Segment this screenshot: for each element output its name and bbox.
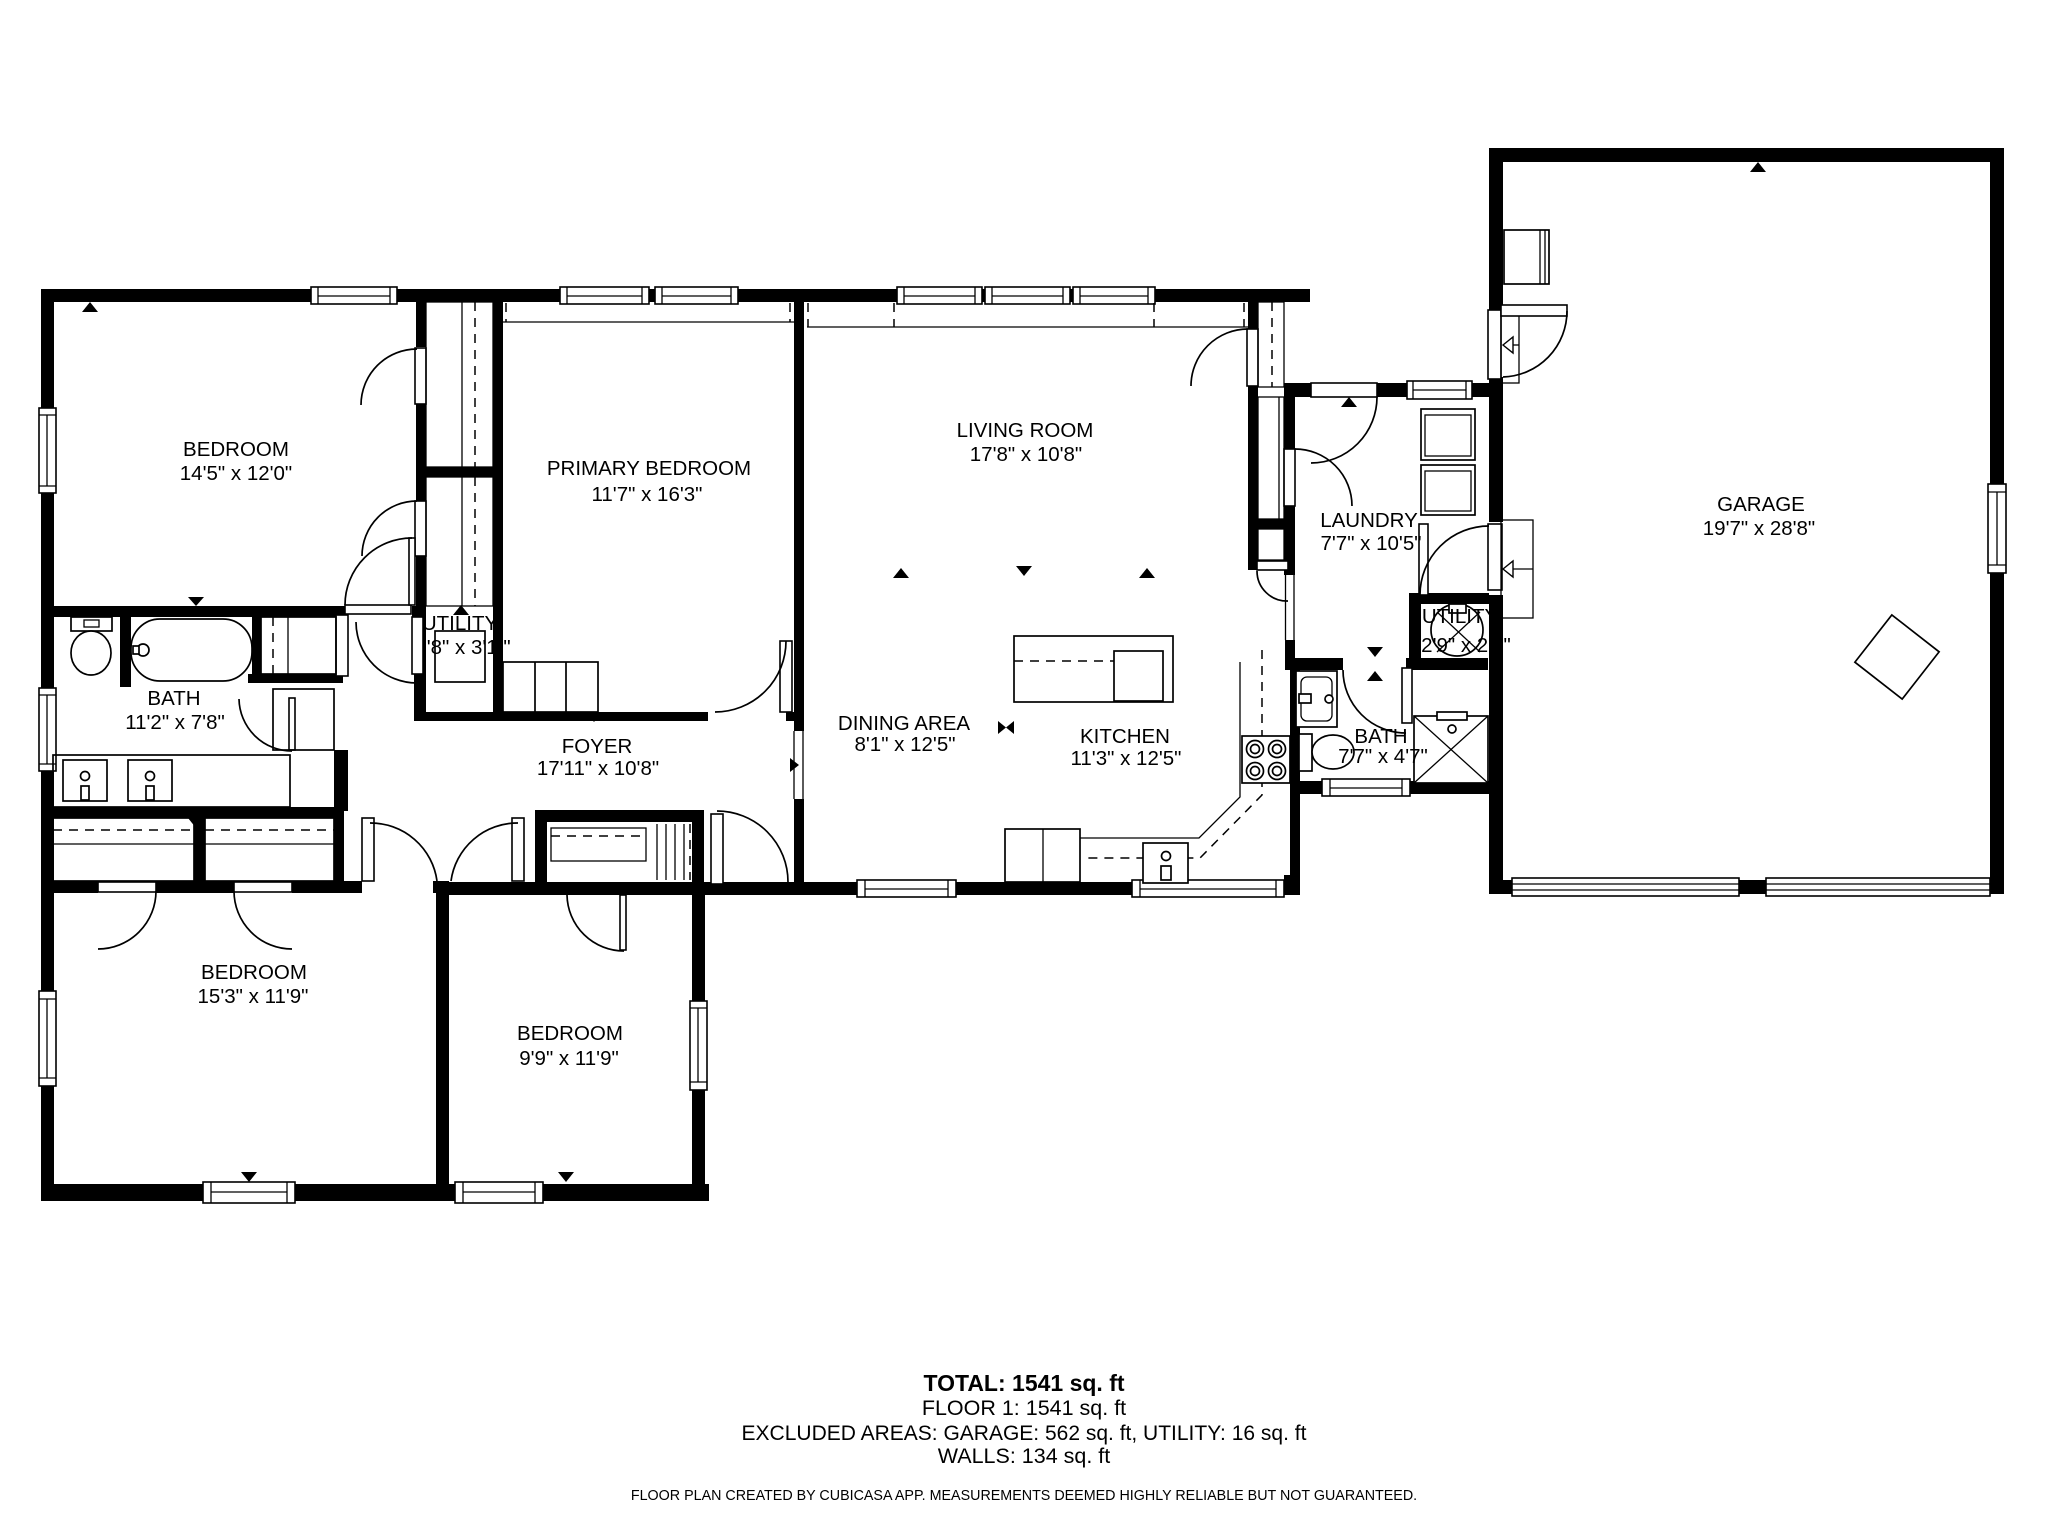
svg-text:FOYER: FOYER [562,735,633,758]
svg-text:KITCHEN: KITCHEN [1080,725,1170,748]
svg-text:17'8" x 10'8": 17'8" x 10'8" [970,443,1082,466]
svg-text:FLOOR 1: 1541 sq. ft: FLOOR 1: 1541 sq. ft [922,1396,1126,1420]
svg-text:UTILITY: UTILITY [1422,605,1499,628]
svg-text:17'11" x 10'8": 17'11" x 10'8" [537,757,659,780]
svg-text:TOTAL: 1541 sq. ft: TOTAL: 1541 sq. ft [923,1370,1124,1396]
svg-text:7'7" x 4'7": 7'7" x 4'7" [1338,745,1428,768]
svg-text:BEDROOM: BEDROOM [183,438,289,461]
svg-text:FLOOR PLAN CREATED BY CUBICASA: FLOOR PLAN CREATED BY CUBICASA APP. MEAS… [631,1488,1417,1504]
svg-text:BATH: BATH [147,687,200,710]
svg-text:7'7" x 10'5": 7'7" x 10'5" [1320,532,1421,555]
svg-text:11'3" x 12'5": 11'3" x 12'5" [1071,747,1182,770]
svg-text:GARAGE: GARAGE [1717,493,1805,516]
svg-text:19'7" x 28'8": 19'7" x 28'8" [1703,517,1815,540]
svg-text:BEDROOM: BEDROOM [517,1022,623,1045]
svg-text:11'7" x 16'3": 11'7" x 16'3" [592,483,703,506]
svg-text:9'9" x 11'9": 9'9" x 11'9" [519,1047,619,1070]
svg-text:BEDROOM: BEDROOM [201,961,307,984]
svg-text:WALLS: 134 sq. ft: WALLS: 134 sq. ft [938,1444,1111,1468]
svg-text:LIVING ROOM: LIVING ROOM [957,419,1094,442]
svg-text:DINING AREA: DINING AREA [838,712,970,735]
svg-text:EXCLUDED AREAS: GARAGE: 562 sq: EXCLUDED AREAS: GARAGE: 562 sq. ft, UTIL… [742,1422,1307,1445]
svg-text:14'5" x 12'0": 14'5" x 12'0" [180,462,292,485]
svg-text:15'3" x 11'9": 15'3" x 11'9" [198,985,309,1008]
svg-text:LAUNDRY: LAUNDRY [1320,509,1418,532]
svg-text:PRIMARY BEDROOM: PRIMARY BEDROOM [547,457,751,480]
svg-text:UTILITY: UTILITY [422,612,499,635]
svg-text:8'1" x 12'5": 8'1" x 12'5" [854,733,955,756]
svg-text:11'2" x 7'8": 11'2" x 7'8" [125,711,225,734]
